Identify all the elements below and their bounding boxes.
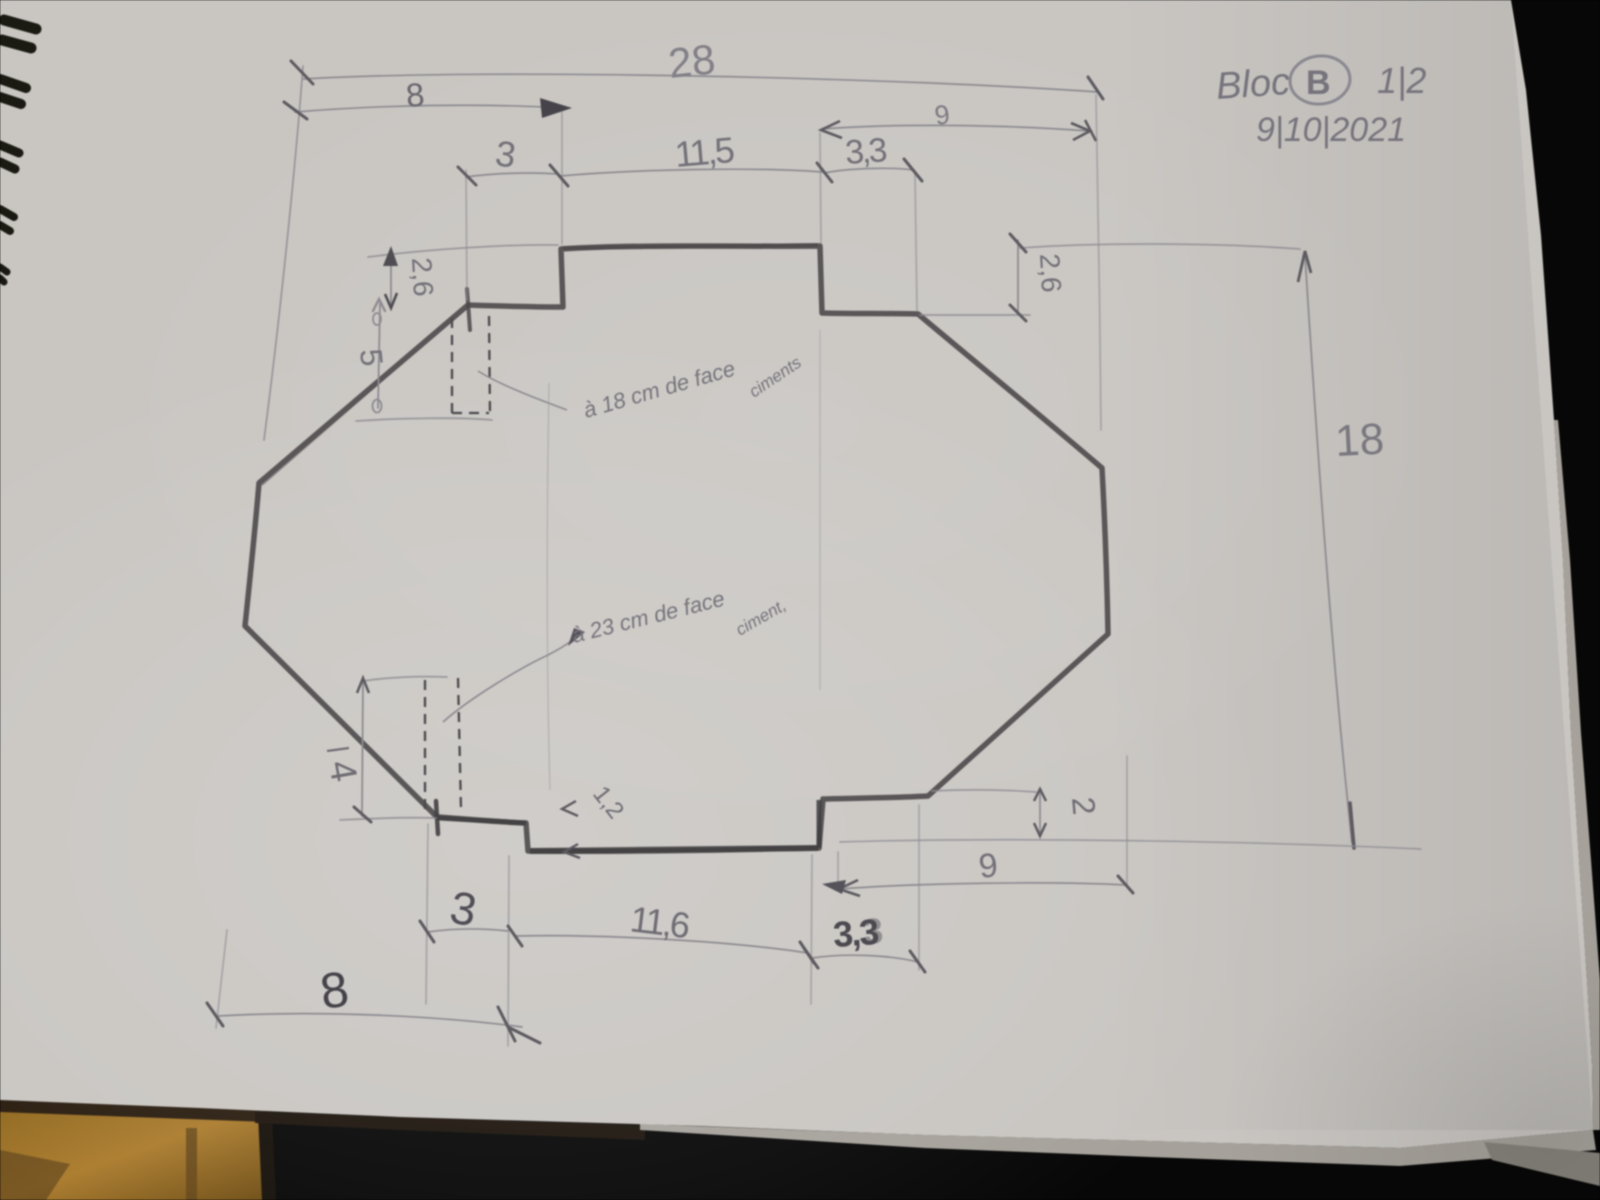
svg-text:3: 3	[862, 910, 885, 952]
svg-text:2,6: 2,6	[1034, 253, 1067, 294]
svg-text:1|2: 1|2	[1377, 60, 1426, 101]
svg-text:2,6: 2,6	[406, 257, 439, 298]
svg-text:2: 2	[1065, 795, 1102, 816]
svg-text:18: 18	[1334, 414, 1385, 465]
svg-text:11,6: 11,6	[628, 898, 691, 946]
svg-text:9: 9	[977, 846, 1000, 886]
svg-text:B: B	[1306, 64, 1331, 102]
svg-text:28: 28	[666, 35, 717, 87]
svg-text:11,5: 11,5	[673, 129, 735, 175]
svg-text:9|10|2021: 9|10|2021	[1256, 111, 1406, 149]
svg-text:3,3: 3,3	[844, 131, 888, 172]
svg-text:8: 8	[404, 76, 426, 114]
svg-text:Bloc: Bloc	[1215, 61, 1292, 108]
svg-text:5: 5	[353, 347, 390, 368]
